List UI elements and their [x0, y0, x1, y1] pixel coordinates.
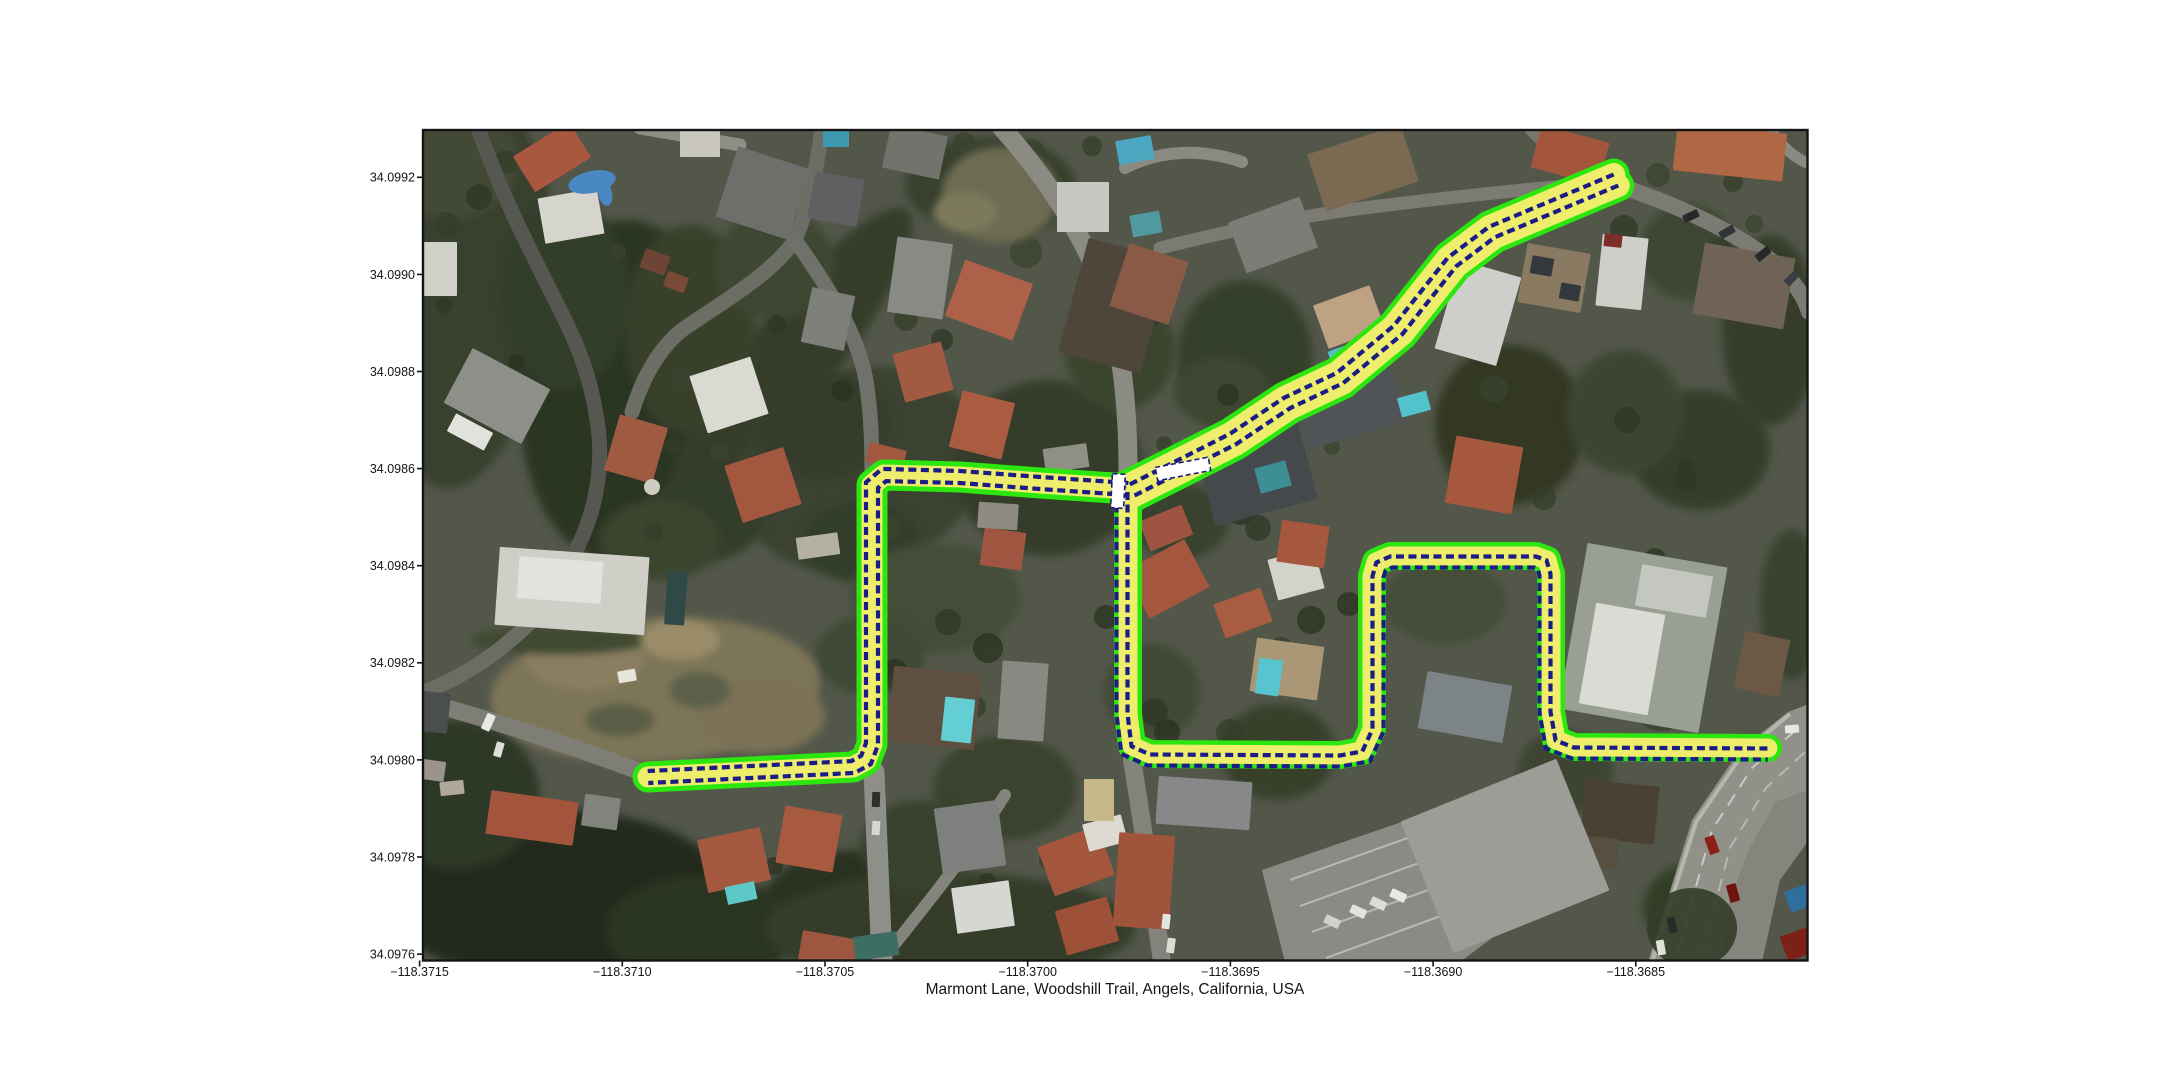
svg-text:−118.3685: −118.3685: [1607, 965, 1666, 979]
svg-text:34.0986: 34.0986: [370, 462, 415, 476]
svg-text:34.0992: 34.0992: [370, 171, 415, 185]
svg-text:34.0982: 34.0982: [370, 656, 415, 670]
svg-text:−118.3710: −118.3710: [593, 965, 652, 979]
svg-text:34.0978: 34.0978: [370, 850, 415, 864]
svg-text:34.0980: 34.0980: [370, 753, 415, 767]
svg-text:34.0976: 34.0976: [370, 948, 415, 962]
svg-text:Marmont Lane, Woodshill Trail,: Marmont Lane, Woodshill Trail, Angels, C…: [926, 981, 1305, 998]
svg-text:−118.3705: −118.3705: [796, 965, 855, 979]
svg-text:−118.3715: −118.3715: [390, 965, 449, 979]
svg-text:34.0990: 34.0990: [370, 268, 415, 282]
svg-text:−118.3695: −118.3695: [1201, 965, 1260, 979]
svg-text:34.0984: 34.0984: [370, 559, 415, 573]
svg-text:−118.3690: −118.3690: [1404, 965, 1463, 979]
svg-text:−118.3700: −118.3700: [998, 965, 1057, 979]
svg-text:34.0988: 34.0988: [370, 365, 415, 379]
